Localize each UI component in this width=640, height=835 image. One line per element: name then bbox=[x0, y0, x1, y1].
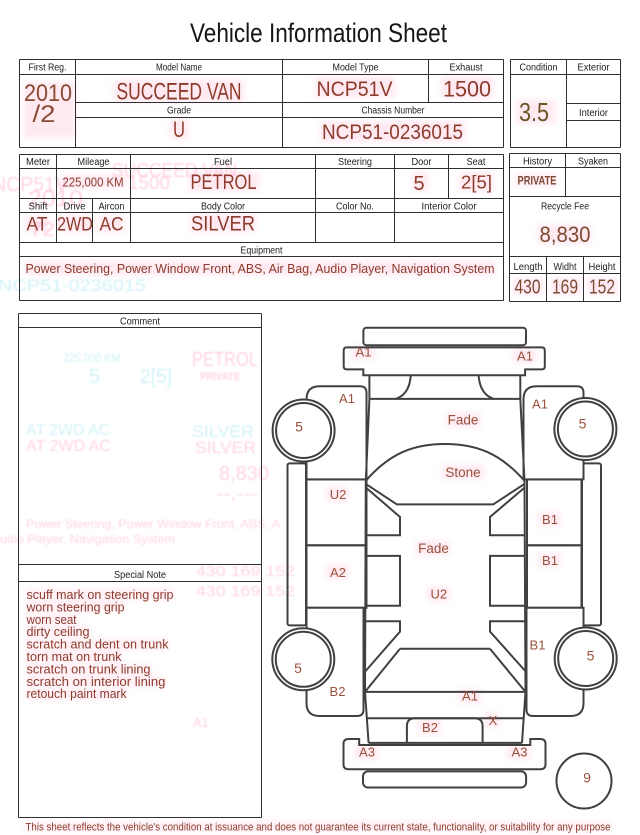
svg-text:SILVER: SILVER bbox=[191, 213, 255, 236]
svg-text:Chassis Number: Chassis Number bbox=[362, 106, 426, 117]
svg-text:Interior: Interior bbox=[579, 108, 609, 119]
svg-text:Fade: Fade bbox=[418, 541, 449, 556]
svg-text:AC: AC bbox=[100, 215, 124, 236]
svg-text:Door: Door bbox=[412, 157, 433, 168]
svg-text:5: 5 bbox=[89, 366, 100, 388]
svg-text:Comment: Comment bbox=[120, 317, 160, 328]
svg-text:Stone: Stone bbox=[445, 465, 480, 480]
svg-text:A1: A1 bbox=[356, 345, 372, 360]
svg-text:Steering: Steering bbox=[338, 157, 372, 168]
svg-text:Interior Color: Interior Color bbox=[422, 202, 478, 213]
svg-text:PETROL: PETROL bbox=[192, 349, 258, 371]
svg-text:Body Color: Body Color bbox=[201, 202, 246, 213]
svg-text:2[5]: 2[5] bbox=[461, 173, 492, 193]
svg-text:Syaken: Syaken bbox=[578, 157, 608, 168]
svg-text:This sheet reflects the vehicl: This sheet reflects the vehicle's condit… bbox=[26, 822, 611, 834]
svg-text:Mileage: Mileage bbox=[78, 157, 110, 168]
svg-text:2[5]: 2[5] bbox=[140, 366, 172, 388]
svg-text:B2: B2 bbox=[330, 684, 346, 699]
svg-text:5: 5 bbox=[587, 648, 595, 664]
svg-text:Seat: Seat bbox=[467, 157, 486, 168]
svg-text:Power Steering, Power Window: Power Steering, Power Window Front, ABS,… bbox=[26, 261, 495, 276]
svg-text:A3: A3 bbox=[512, 745, 528, 760]
svg-text:AT 2WD AC: AT 2WD AC bbox=[26, 422, 110, 439]
svg-text:Aircon: Aircon bbox=[99, 202, 125, 213]
svg-text:225,000 KM: 225,000 KM bbox=[63, 351, 120, 365]
svg-text:Fuel: Fuel bbox=[214, 157, 232, 168]
svg-text:Condition: Condition bbox=[520, 63, 558, 74]
svg-text:Drive: Drive bbox=[64, 202, 86, 213]
svg-text:retouch paint mark: retouch paint mark bbox=[27, 686, 127, 701]
svg-text:5: 5 bbox=[413, 173, 424, 195]
svg-text:5: 5 bbox=[295, 419, 303, 435]
svg-text:B1: B1 bbox=[530, 638, 546, 653]
svg-text:U2: U2 bbox=[330, 487, 347, 502]
svg-text:AT: AT bbox=[27, 215, 48, 236]
svg-text:PRIVATE: PRIVATE bbox=[200, 371, 240, 383]
svg-text:5: 5 bbox=[579, 416, 587, 432]
svg-text:PETROL: PETROL bbox=[191, 171, 257, 194]
svg-text:Vehicle Information Sheet: Vehicle Information Sheet bbox=[190, 18, 447, 48]
svg-text:A3: A3 bbox=[359, 745, 375, 760]
svg-text:1500: 1500 bbox=[443, 77, 491, 102]
svg-text:/2: /2 bbox=[33, 101, 56, 128]
svg-text:SUCCEED VAN: SUCCEED VAN bbox=[117, 79, 242, 106]
svg-text:PRIVATE: PRIVATE bbox=[518, 174, 557, 188]
svg-text:Power Steering, Power Window: Power Steering, Power Window Front, ABS,… bbox=[26, 517, 280, 531]
svg-text:Model Type: Model Type bbox=[333, 63, 379, 74]
svg-text:430: 430 bbox=[515, 277, 541, 299]
svg-text:1500: 1500 bbox=[128, 173, 170, 193]
svg-text:430 169 152: 430 169 152 bbox=[196, 583, 295, 600]
svg-text:9: 9 bbox=[583, 770, 591, 786]
svg-text:Length: Length bbox=[514, 262, 543, 273]
svg-text:B1: B1 bbox=[542, 512, 558, 527]
svg-text:Recycle Fee: Recycle Fee bbox=[541, 202, 589, 213]
svg-text:152: 152 bbox=[589, 277, 615, 299]
svg-text:3.5: 3.5 bbox=[519, 97, 549, 127]
svg-text:X: X bbox=[489, 713, 498, 728]
svg-text:NCP51-0236015: NCP51-0236015 bbox=[322, 121, 463, 144]
svg-text:History: History bbox=[523, 157, 552, 168]
svg-text:Shift: Shift bbox=[29, 202, 48, 213]
svg-text:Color No.: Color No. bbox=[336, 202, 374, 213]
svg-text:Fade: Fade bbox=[448, 413, 479, 428]
svg-text:A1: A1 bbox=[193, 715, 209, 730]
svg-text:169: 169 bbox=[552, 277, 578, 299]
svg-text:Model Name: Model Name bbox=[156, 63, 202, 74]
svg-text:225,000 KM: 225,000 KM bbox=[63, 175, 124, 190]
svg-text:Widht: Widht bbox=[554, 262, 577, 273]
svg-text:Grade: Grade bbox=[167, 106, 191, 117]
svg-text:A2: A2 bbox=[330, 565, 346, 580]
svg-text:B2: B2 bbox=[422, 720, 438, 735]
svg-text:AT 2WD AC: AT 2WD AC bbox=[26, 438, 111, 455]
svg-text:--,---: --,--- bbox=[216, 486, 258, 503]
svg-text:8,830: 8,830 bbox=[540, 222, 591, 247]
svg-text:Height: Height bbox=[589, 262, 616, 273]
svg-text:430 169 152: 430 169 152 bbox=[196, 563, 295, 580]
svg-text:Special Note: Special Note bbox=[114, 570, 166, 581]
svg-text:A1: A1 bbox=[339, 391, 355, 406]
svg-text:udio Player, Navigation System: udio Player, Navigation System bbox=[0, 532, 175, 546]
svg-text:Exterior: Exterior bbox=[578, 63, 611, 74]
svg-text:First Reg.: First Reg. bbox=[29, 63, 67, 74]
svg-text:A1: A1 bbox=[462, 689, 478, 704]
svg-text:A1: A1 bbox=[517, 349, 533, 364]
svg-text:NCP51-0236015: NCP51-0236015 bbox=[0, 276, 146, 295]
svg-text:NCP51V: NCP51V bbox=[317, 78, 393, 101]
svg-text:Equipment: Equipment bbox=[241, 246, 283, 257]
svg-text:5: 5 bbox=[294, 660, 302, 676]
svg-text:2WD: 2WD bbox=[57, 215, 93, 236]
svg-text:A1: A1 bbox=[532, 397, 548, 412]
svg-text:SILVER: SILVER bbox=[195, 438, 256, 457]
svg-text:Exhaust: Exhaust bbox=[450, 63, 483, 74]
svg-text:U2: U2 bbox=[430, 587, 447, 602]
svg-text:Meter: Meter bbox=[26, 157, 51, 168]
svg-text:U: U bbox=[173, 117, 185, 142]
svg-text:B1: B1 bbox=[542, 553, 558, 568]
